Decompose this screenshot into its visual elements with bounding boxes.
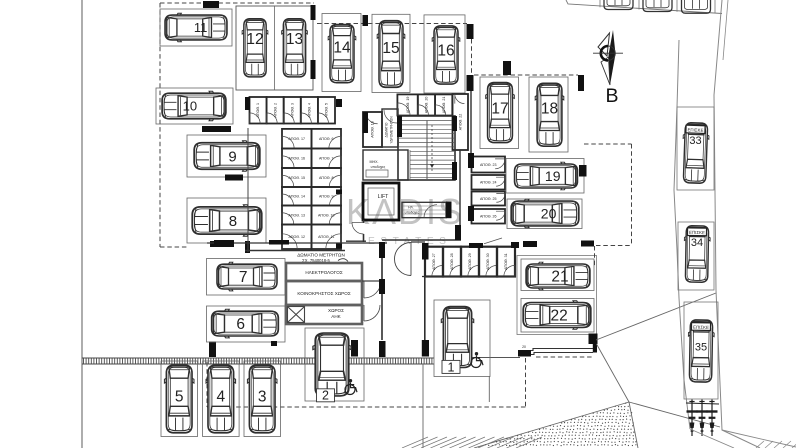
svg-text:ΑΠΟΘ. 13: ΑΠΟΘ. 13 (288, 213, 305, 217)
svg-text:ΑΠΟΘ. 25: ΑΠΟΘ. 25 (480, 197, 497, 201)
svg-text:ΑΠΟΘ. 15: ΑΠΟΘ. 15 (288, 176, 305, 180)
svg-text:21: 21 (551, 269, 568, 286)
svg-text:LIFT: LIFT (378, 194, 389, 200)
svg-text:υποδοχές: υποδοχές (405, 211, 420, 215)
svg-text:7: 7 (239, 269, 248, 286)
svg-text:ΕΠΙΣΚΕ: ΕΠΙΣΚΕ (689, 230, 705, 235)
svg-text:ΑΠΟΘ. 28: ΑΠΟΘ. 28 (450, 253, 454, 270)
svg-text:ΑΠΟΘ. 17: ΑΠΟΘ. 17 (288, 137, 305, 141)
svg-text:ΗΛΕΚΤΡΟΛΟΓΟΣ: ΗΛΕΚΤΡΟΛΟΓΟΣ (305, 270, 343, 275)
svg-text:ΑΠΟΘ. 10: ΑΠΟΘ. 10 (318, 213, 335, 217)
svg-text:ΑΠΟΘ. 6: ΑΠΟΘ. 6 (319, 137, 334, 141)
svg-text:ΧΩΡΟΣ: ΧΩΡΟΣ (328, 308, 344, 313)
svg-text:ΑΗΚ: ΑΗΚ (331, 314, 341, 319)
svg-text:6: 6 (236, 316, 245, 333)
svg-text:ΑΠΟΘ. 14: ΑΠΟΘ. 14 (288, 195, 305, 199)
svg-text:ΕΠΙΣΚΕ: ΕΠΙΣΚΕ (687, 127, 703, 133)
svg-text:ΑΠΟΘ. 4: ΑΠΟΘ. 4 (308, 103, 312, 118)
svg-text:ΑΠΟΘ. 31: ΑΠΟΘ. 31 (504, 253, 508, 270)
svg-text:ΑΠΟΘ. 24: ΑΠΟΘ. 24 (480, 181, 497, 185)
svg-text:ΑΠΟΘ. 26: ΑΠΟΘ. 26 (480, 215, 497, 219)
svg-text:34: 34 (691, 237, 703, 249)
svg-text:ΑΠΟΘ. 3: ΑΠΟΘ. 3 (290, 103, 294, 118)
svg-text:υποδοχες: υποδοχες (371, 165, 386, 169)
svg-text:10: 10 (183, 99, 197, 114)
svg-text:ΑΠΟΘ. 2: ΑΠΟΘ. 2 (273, 103, 277, 118)
svg-text:ΑΠΟΘ. 22: ΑΠΟΘ. 22 (458, 114, 462, 131)
svg-text:ΜΗΧ.: ΜΗΧ. (370, 160, 379, 164)
svg-text:35: 35 (695, 341, 707, 353)
svg-text:12: 12 (246, 31, 263, 48)
svg-text:ΑΠΟΘ. 27: ΑΠΟΘ. 27 (432, 253, 436, 270)
svg-text:ΑΠΟΘ. 23: ΑΠΟΘ. 23 (480, 163, 497, 167)
svg-text:13: 13 (286, 31, 303, 48)
svg-text:4: 4 (216, 389, 225, 406)
svg-text:3: 3 (258, 389, 267, 406)
svg-text:5: 5 (175, 389, 184, 406)
svg-text:ΑΠΟΘ. 21: ΑΠΟΘ. 21 (442, 97, 446, 114)
svg-text:B: B (605, 85, 618, 107)
svg-text:ΑΠΟΘ. 29: ΑΠΟΘ. 29 (468, 253, 472, 270)
svg-text:ΑΠΟΘ. 12: ΑΠΟΘ. 12 (288, 235, 305, 239)
svg-text:ΚΟΙΝΟΚΡΗΣΤΟΣ ΧΩΡΟΣ: ΚΟΙΝΟΚΡΗΣΤΟΣ ΧΩΡΟΣ (297, 291, 350, 296)
svg-text:2: 2 (322, 389, 329, 403)
svg-text:ΥΔΡΟΜΕΤΡΗΤΩΝ: ΥΔΡΟΜΕΤΡΗΤΩΝ (390, 116, 394, 144)
svg-text:14: 14 (333, 39, 351, 56)
svg-text:ΑΠΟΘ. 20: ΑΠΟΘ. 20 (425, 97, 429, 114)
svg-text:ΑΠΟΘ. 9: ΑΠΟΘ. 9 (319, 195, 334, 199)
svg-text:ΑΠΟΘ. 30: ΑΠΟΘ. 30 (486, 253, 490, 270)
svg-text:11: 11 (194, 20, 208, 35)
svg-text:22: 22 (551, 308, 568, 325)
svg-text:ΑΠΟΘ. 8: ΑΠΟΘ. 8 (319, 176, 334, 180)
svg-text:16: 16 (437, 43, 454, 60)
svg-text:ΔΩΜΑΤΙΟ: ΔΩΜΑΤΙΟ (385, 122, 389, 137)
svg-text:9: 9 (228, 148, 236, 165)
svg-text:20: 20 (541, 206, 557, 222)
svg-text:ΑΠΟΘ. 19: ΑΠΟΘ. 19 (406, 97, 410, 114)
svg-text:ΑΠΟΘ. 11: ΑΠΟΘ. 11 (318, 235, 334, 239)
svg-text:1: 1 (448, 360, 455, 374)
svg-text:15: 15 (382, 40, 399, 57)
svg-text:ΔΩΜΑΤΙΟ ΜΕΤΡΗΤΩΝ: ΔΩΜΑΤΙΟ ΜΕΤΡΗΤΩΝ (297, 253, 345, 258)
svg-text:ΑΠΟΘ. 5: ΑΠΟΘ. 5 (325, 103, 329, 118)
svg-text:ΑΠΟΘ. 7: ΑΠΟΘ. 7 (319, 157, 334, 161)
svg-text:19: 19 (545, 168, 561, 184)
svg-text:ΗΛ.: ΗΛ. (408, 206, 414, 210)
svg-text:ΑΠΟΘ. 16: ΑΠΟΘ. 16 (288, 157, 305, 161)
svg-text:20: 20 (522, 345, 526, 349)
svg-text:ΑΠΟΘ. 18: ΑΠΟΘ. 18 (371, 121, 375, 138)
svg-text:33: 33 (689, 135, 701, 147)
svg-text:18: 18 (541, 101, 558, 118)
svg-text:ΕΠΙΣΚΕ: ΕΠΙΣΚΕ (693, 325, 709, 330)
svg-text:ΑΠΟΘ. 1: ΑΠΟΘ. 1 (256, 103, 260, 118)
svg-text:17: 17 (491, 101, 508, 118)
svg-text:8: 8 (229, 213, 237, 230)
